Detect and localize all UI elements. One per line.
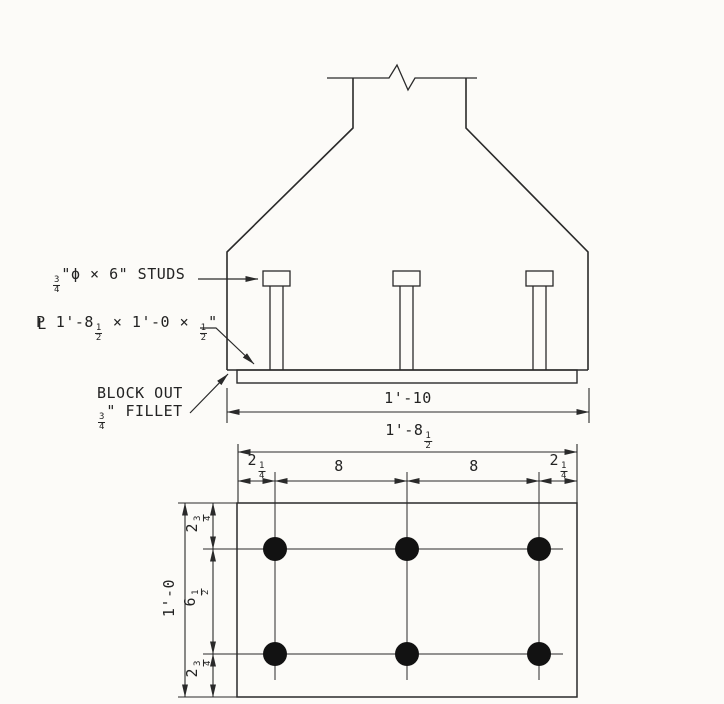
stud-right — [526, 271, 553, 370]
spacing-dim-right-span-text: 8 — [469, 457, 479, 475]
blockout-line1: BLOCK OUT — [97, 384, 183, 402]
stud-callout-label: 34"ϕ × 6" STUDS — [52, 265, 185, 295]
vertical-dim-middle-span-text: 612 — [181, 588, 211, 607]
bearing-plate — [237, 370, 577, 383]
stud-dot — [263, 642, 287, 666]
plan-overall-height-dim-text: 1'-0 — [160, 579, 178, 617]
stud-dot — [527, 642, 551, 666]
engineering-drawing-sheet: 34"ϕ × 6" STUDS PL 1'-812 × 1'-0 × 12" B… — [0, 0, 724, 704]
girder-outline — [227, 78, 588, 370]
spacing-dim-right-edge-text: 214 — [550, 451, 569, 481]
stud-size-fraction: 34 — [53, 276, 60, 295]
stud-dot — [395, 537, 419, 561]
plan-overall-width-dim-text: 1'-812 — [385, 421, 433, 451]
drawing-linework — [0, 0, 724, 704]
stud-dot — [527, 537, 551, 561]
plate-callout-label: PL 1'-812 × 1'-0 × 12" — [36, 313, 218, 343]
spacing-dim-left-span-text: 8 — [334, 457, 344, 475]
girder-break-line — [327, 65, 477, 90]
stud-middle — [393, 271, 420, 370]
spacing-dim-left-edge-text: 214 — [248, 451, 267, 481]
stud-dot — [395, 642, 419, 666]
stud-left — [263, 271, 290, 370]
blockout-callout-label: BLOCK OUT 34" FILLET — [97, 384, 183, 432]
plate-symbol: PL — [36, 313, 46, 331]
elevation-view — [190, 65, 589, 423]
blockout-callout-leader — [190, 374, 228, 413]
plan-view — [178, 444, 577, 697]
vertical-dim-bottom-edge-text: 234 — [183, 659, 213, 678]
blockout-line2: 34" FILLET — [97, 402, 183, 432]
elevation-width-dim-text: 1'-10 — [384, 389, 432, 407]
vertical-dim-top-edge-text: 234 — [183, 514, 213, 533]
stud-dot — [263, 537, 287, 561]
